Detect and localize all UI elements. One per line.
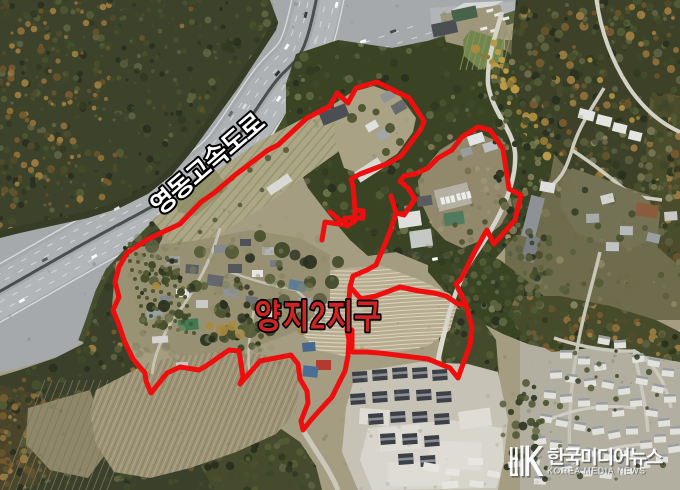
svg-text:KOREA MEDIA NEWS: KOREA MEDIA NEWS — [547, 466, 646, 476]
